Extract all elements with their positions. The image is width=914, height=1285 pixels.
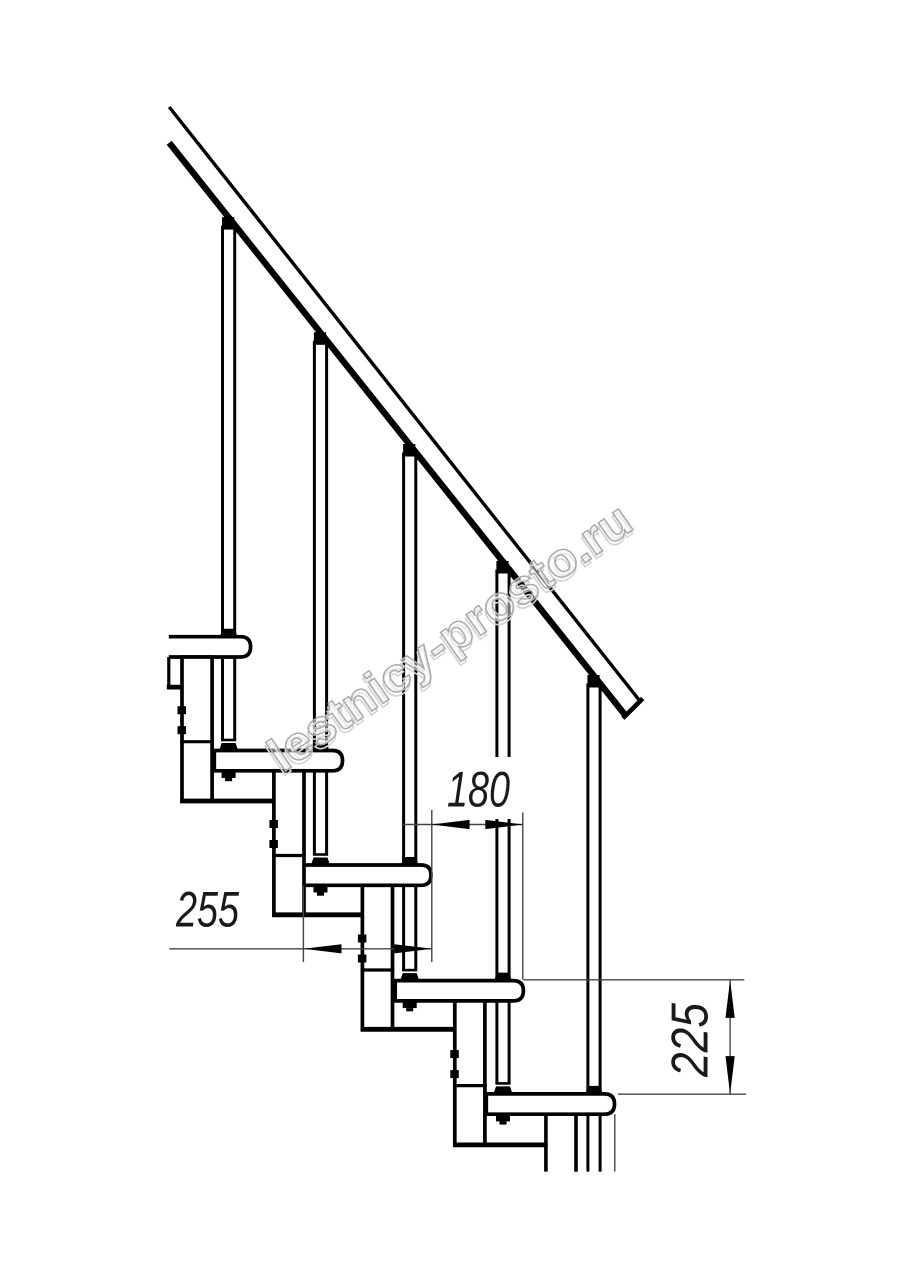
svg-text:180: 180 [447,761,510,817]
svg-text:255: 255 [175,882,239,938]
svg-text:225: 225 [662,1002,720,1078]
